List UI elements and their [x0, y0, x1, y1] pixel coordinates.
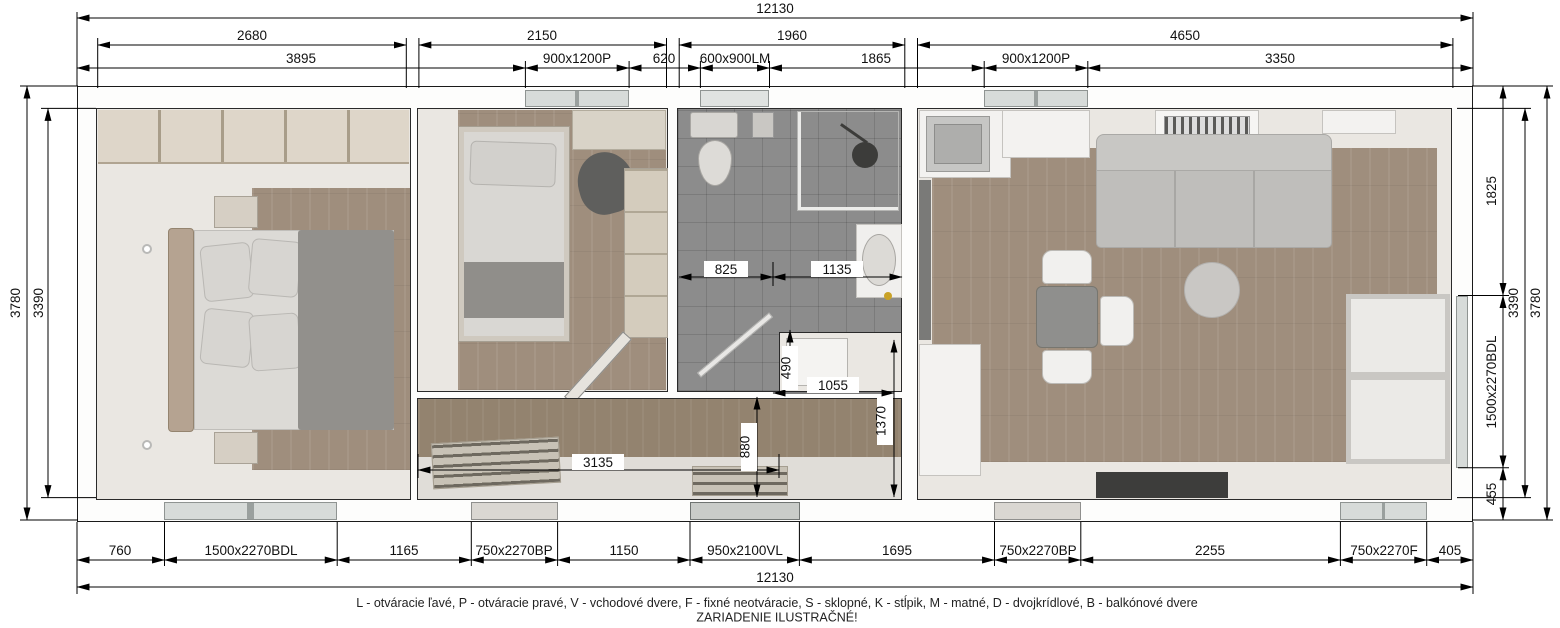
round-rug: [1184, 262, 1240, 318]
wardrobe-shelving: [98, 110, 409, 164]
shoe-grate: [431, 437, 561, 490]
dim-room1-width: 2680: [237, 28, 267, 43]
shower-head: [852, 142, 878, 168]
bed-pillow: [199, 242, 255, 303]
bathroom-sink-basin: [862, 234, 896, 286]
floor-plan: 12130 2680 2150 1960 4650 3895 900x1200P…: [0, 0, 1560, 628]
kitchen-window-900x1200: [984, 90, 1088, 107]
shoe-grate: [692, 466, 788, 496]
ceiling-light: [142, 244, 152, 254]
dim-bottom-seg-10: 750x2270F: [1350, 543, 1418, 558]
dim-overall-bottom: 12130: [756, 570, 794, 585]
dim-bottom-seg-7: 1695: [882, 543, 912, 558]
dining-table: [1036, 286, 1098, 348]
sofa-backrest: [1096, 134, 1332, 172]
dim-left-overall: 3780: [8, 288, 23, 318]
dim-top-seg-3: 620: [653, 51, 676, 66]
dim-bottom-seg-5: 1150: [609, 543, 638, 558]
dining-chair: [1100, 296, 1134, 346]
living-door-750: [994, 502, 1081, 520]
dim-right-window: 1500x2270BDL: [1484, 335, 1499, 429]
dim-overall-top: 12130: [756, 1, 794, 16]
dim-right-bottom: 455: [1484, 483, 1499, 506]
wardrobe: [624, 168, 668, 338]
dim-bottom-seg-4: 750x2270BP: [475, 543, 552, 558]
dim-bottom-seg-9: 2255: [1195, 543, 1225, 558]
legend-line-1: L - otváracie ľavé, P - otváracie pravé,…: [356, 595, 1198, 610]
toilet-cistern: [690, 112, 738, 138]
dim-bottom-seg-3: 1165: [389, 543, 418, 558]
nightstand: [214, 196, 258, 228]
dim-top-seg-1: 3895: [286, 51, 316, 66]
dim-top-seg-4: 600x900LM: [700, 51, 771, 66]
bed-pillow: [248, 312, 302, 371]
kitchen-cabinet-left: [919, 344, 981, 476]
legend-line-2: ZARIADENIE ILUSTRAČNÉ!: [696, 610, 857, 625]
dining-chair: [1042, 250, 1092, 284]
right-wall-glazing: [1456, 296, 1468, 468]
dim-right-top: 1825: [1484, 176, 1499, 206]
bedroom-door-750: [471, 502, 558, 520]
dim-top-seg-2: 900x1200P: [543, 51, 611, 66]
single-bed-blanket: [464, 262, 564, 318]
bed-pillow: [199, 308, 255, 369]
washing-machine: [786, 338, 848, 386]
sofa-seats: [1096, 170, 1332, 248]
dim-right-interior: 3390: [1506, 288, 1521, 318]
cabinet-top: [1002, 110, 1090, 158]
bathroom-window-600x900: [700, 90, 769, 107]
dim-bottom-seg-1: 760: [109, 543, 132, 558]
toilet-paper-holder: [752, 112, 774, 138]
ceiling-light: [142, 440, 152, 450]
dim-top-seg-7: 3350: [1265, 51, 1295, 66]
dim-right-overall: 3780: [1528, 288, 1543, 318]
kitchen-tall-cabinet: [919, 180, 931, 340]
dim-bath-width: 1960: [777, 28, 807, 43]
dim-bottom-seg-6: 950x2100VL: [707, 543, 783, 558]
bed-blanket: [298, 230, 394, 430]
dim-bottom-seg-11: 405: [1439, 543, 1462, 558]
dining-chair: [1042, 350, 1092, 384]
sink-tap-gold: [884, 292, 892, 300]
nightstand: [214, 432, 258, 464]
entrance-door-950x2100: [690, 502, 800, 520]
bed-headboard: [168, 228, 194, 432]
dim-living-width: 4650: [1170, 28, 1200, 43]
dim-bottom-seg-2: 1500x2270BDL: [204, 543, 298, 558]
bedroom2-window-900x1200: [525, 90, 629, 107]
desk: [572, 110, 666, 150]
balcony-window-crossbar: [1346, 372, 1450, 380]
kitchen-sink-basin: [934, 124, 982, 164]
dim-top-seg-5: 1865: [861, 51, 891, 66]
dim-bottom-seg-8: 750x2270BP: [999, 543, 1076, 558]
single-bed-pillow: [469, 141, 556, 188]
bedroom1-balcony-door: [164, 502, 337, 520]
bed-pillow: [248, 238, 303, 298]
fixed-window-750: [1340, 502, 1427, 520]
dim-top-seg-6: 900x1200P: [1002, 51, 1070, 66]
dim-room2-width: 2150: [527, 28, 557, 43]
dim-left-interior: 3390: [31, 288, 46, 318]
wall-shelf: [1322, 110, 1396, 134]
doormat: [1096, 472, 1228, 498]
